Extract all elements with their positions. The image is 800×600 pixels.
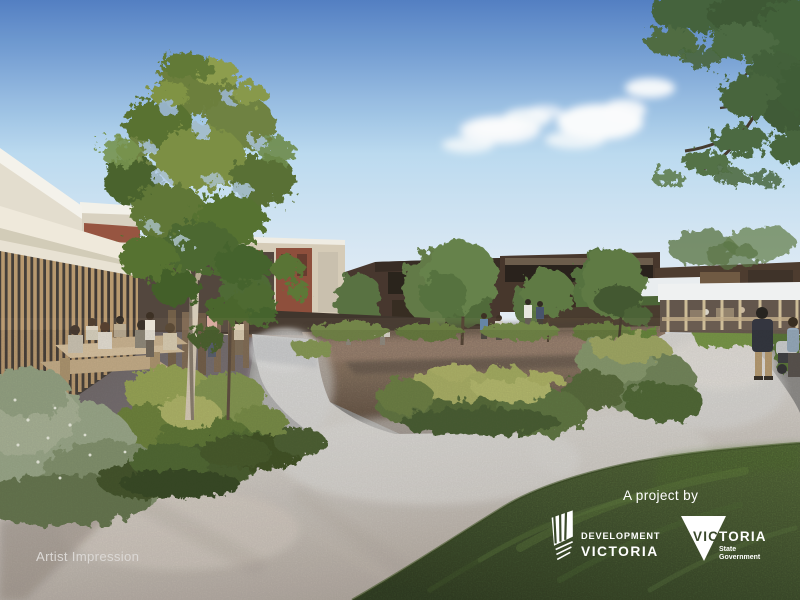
svg-text:TORIA: TORIA (719, 529, 767, 544)
svg-text:VIC: VIC (693, 529, 719, 544)
svg-text:A project by: A project by (623, 488, 698, 503)
svg-text:Government: Government (719, 554, 761, 561)
svg-text:DEVELOPMENT: DEVELOPMENT (581, 531, 660, 541)
svg-text:VICTORIA: VICTORIA (581, 544, 659, 559)
svg-text:Artist Impression: Artist Impression (36, 549, 139, 564)
svg-text:State: State (719, 546, 736, 553)
